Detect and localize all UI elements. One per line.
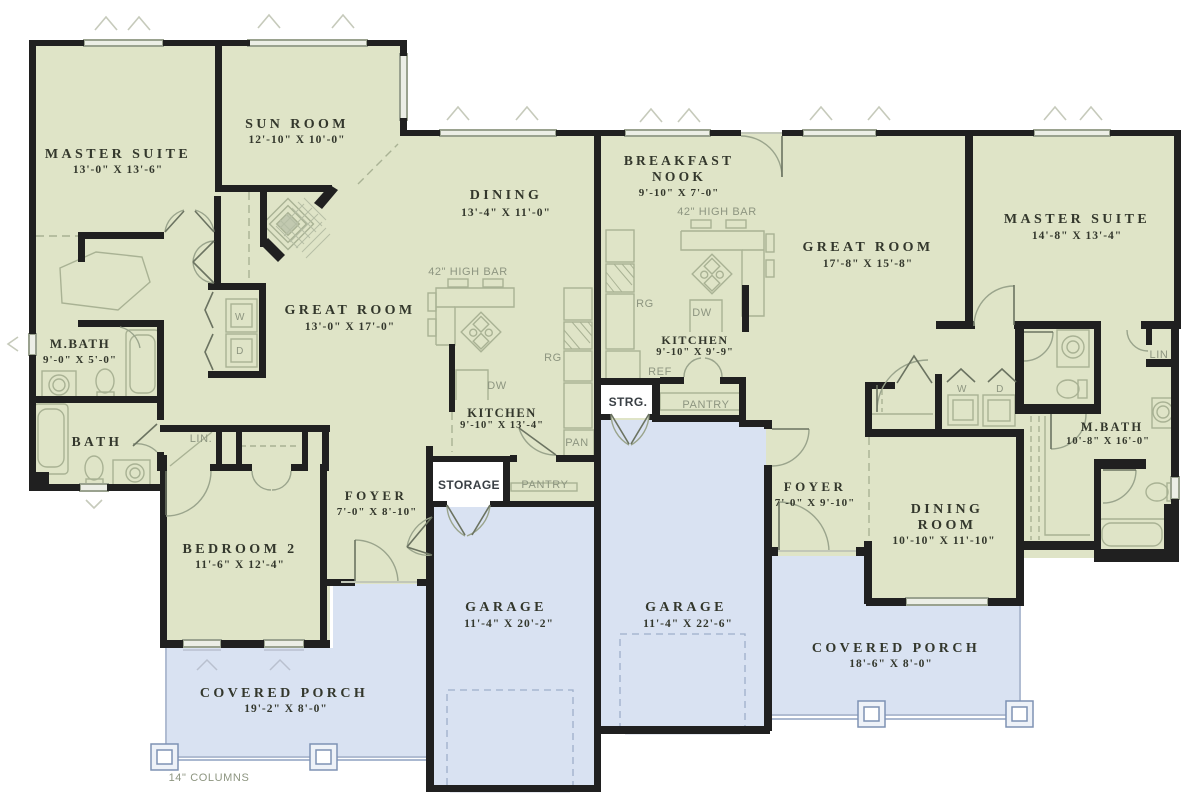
- svg-text:ROOM: ROOM: [918, 518, 977, 533]
- svg-text:PAN: PAN: [565, 437, 589, 449]
- svg-text:FOYER: FOYER: [784, 479, 847, 494]
- svg-text:10'-8" X 16'-0": 10'-8" X 16'-0": [1066, 436, 1150, 447]
- svg-text:11'-4" X 22'-6": 11'-4" X 22'-6": [643, 618, 733, 630]
- svg-text:FOYER: FOYER: [345, 488, 408, 503]
- svg-text:11'-6" X 12'-4": 11'-6" X 12'-4": [195, 559, 285, 571]
- svg-text:13'-0" X 17'-0": 13'-0" X 17'-0": [305, 321, 395, 333]
- svg-text:13'-0" X 13'-6": 13'-0" X 13'-6": [73, 164, 163, 176]
- svg-text:13'-4" X 11'-0": 13'-4" X 11'-0": [461, 207, 551, 219]
- svg-text:MASTER SUITE: MASTER SUITE: [1004, 212, 1150, 227]
- svg-text:RG: RG: [636, 298, 654, 310]
- svg-text:LIN.: LIN.: [190, 433, 213, 445]
- svg-text:12'-10" X 10'-0": 12'-10" X 10'-0": [248, 134, 345, 146]
- svg-text:18'-6" X 8'-0": 18'-6" X 8'-0": [849, 658, 933, 670]
- svg-text:D: D: [996, 384, 1004, 395]
- svg-text:BEDROOM 2: BEDROOM 2: [183, 542, 298, 557]
- svg-text:REF: REF: [648, 366, 672, 378]
- svg-text:42" HIGH BAR: 42" HIGH BAR: [677, 206, 757, 218]
- svg-text:9'-10" X 9'-9": 9'-10" X 9'-9": [656, 347, 734, 358]
- svg-text:9'-10" X 7'-0": 9'-10" X 7'-0": [639, 187, 720, 199]
- svg-text:42" HIGH BAR: 42" HIGH BAR: [428, 266, 508, 278]
- svg-text:DINING: DINING: [911, 502, 984, 517]
- svg-text:GREAT ROOM: GREAT ROOM: [284, 303, 415, 318]
- svg-text:14" COLUMNS: 14" COLUMNS: [169, 772, 250, 784]
- svg-text:BREAKFAST: BREAKFAST: [624, 153, 734, 168]
- svg-text:7'-0" X 9'-10": 7'-0" X 9'-10": [775, 497, 856, 509]
- svg-text:PANTRY: PANTRY: [521, 479, 568, 491]
- svg-text:17'-8" X 15'-8": 17'-8" X 15'-8": [823, 258, 913, 270]
- svg-text:MASTER SUITE: MASTER SUITE: [45, 147, 191, 162]
- svg-text:DW: DW: [487, 380, 507, 392]
- svg-text:DW: DW: [692, 307, 712, 319]
- svg-text:STORAGE: STORAGE: [438, 478, 500, 492]
- svg-text:14'-8" X 13'-4": 14'-8" X 13'-4": [1032, 230, 1122, 242]
- svg-text:19'-2" X 8'-0": 19'-2" X 8'-0": [244, 703, 328, 715]
- svg-text:COVERED PORCH: COVERED PORCH: [812, 641, 980, 656]
- svg-text:PANTRY: PANTRY: [682, 399, 729, 411]
- svg-text:GARAGE: GARAGE: [645, 600, 727, 615]
- svg-text:M.BATH: M.BATH: [1081, 420, 1144, 434]
- svg-text:KITCHEN: KITCHEN: [661, 333, 728, 347]
- svg-text:KITCHEN: KITCHEN: [467, 406, 537, 420]
- svg-text:DINING: DINING: [470, 188, 543, 203]
- svg-text:GARAGE: GARAGE: [465, 600, 547, 615]
- svg-text:9'-0" X 5'-0": 9'-0" X 5'-0": [43, 354, 117, 366]
- svg-text:W: W: [235, 312, 245, 323]
- svg-text:NOOK: NOOK: [652, 169, 706, 184]
- svg-text:D: D: [236, 346, 244, 357]
- svg-text:LIN: LIN: [1150, 349, 1169, 361]
- svg-text:11'-4" X 20'-2": 11'-4" X 20'-2": [464, 618, 554, 630]
- svg-text:SUN ROOM: SUN ROOM: [245, 117, 349, 132]
- svg-text:W: W: [957, 384, 967, 395]
- svg-text:9'-10" X 13'-4": 9'-10" X 13'-4": [460, 420, 544, 431]
- svg-text:RG: RG: [544, 352, 562, 364]
- svg-text:COVERED PORCH: COVERED PORCH: [200, 686, 368, 701]
- svg-text:GREAT ROOM: GREAT ROOM: [802, 240, 933, 255]
- svg-text:M.BATH: M.BATH: [50, 336, 110, 351]
- svg-text:BATH: BATH: [72, 434, 123, 449]
- svg-text:7'-0" X 8'-10": 7'-0" X 8'-10": [337, 506, 418, 518]
- svg-text:STRG.: STRG.: [609, 395, 648, 409]
- svg-text:10'-10" X 11'-10": 10'-10" X 11'-10": [892, 535, 995, 547]
